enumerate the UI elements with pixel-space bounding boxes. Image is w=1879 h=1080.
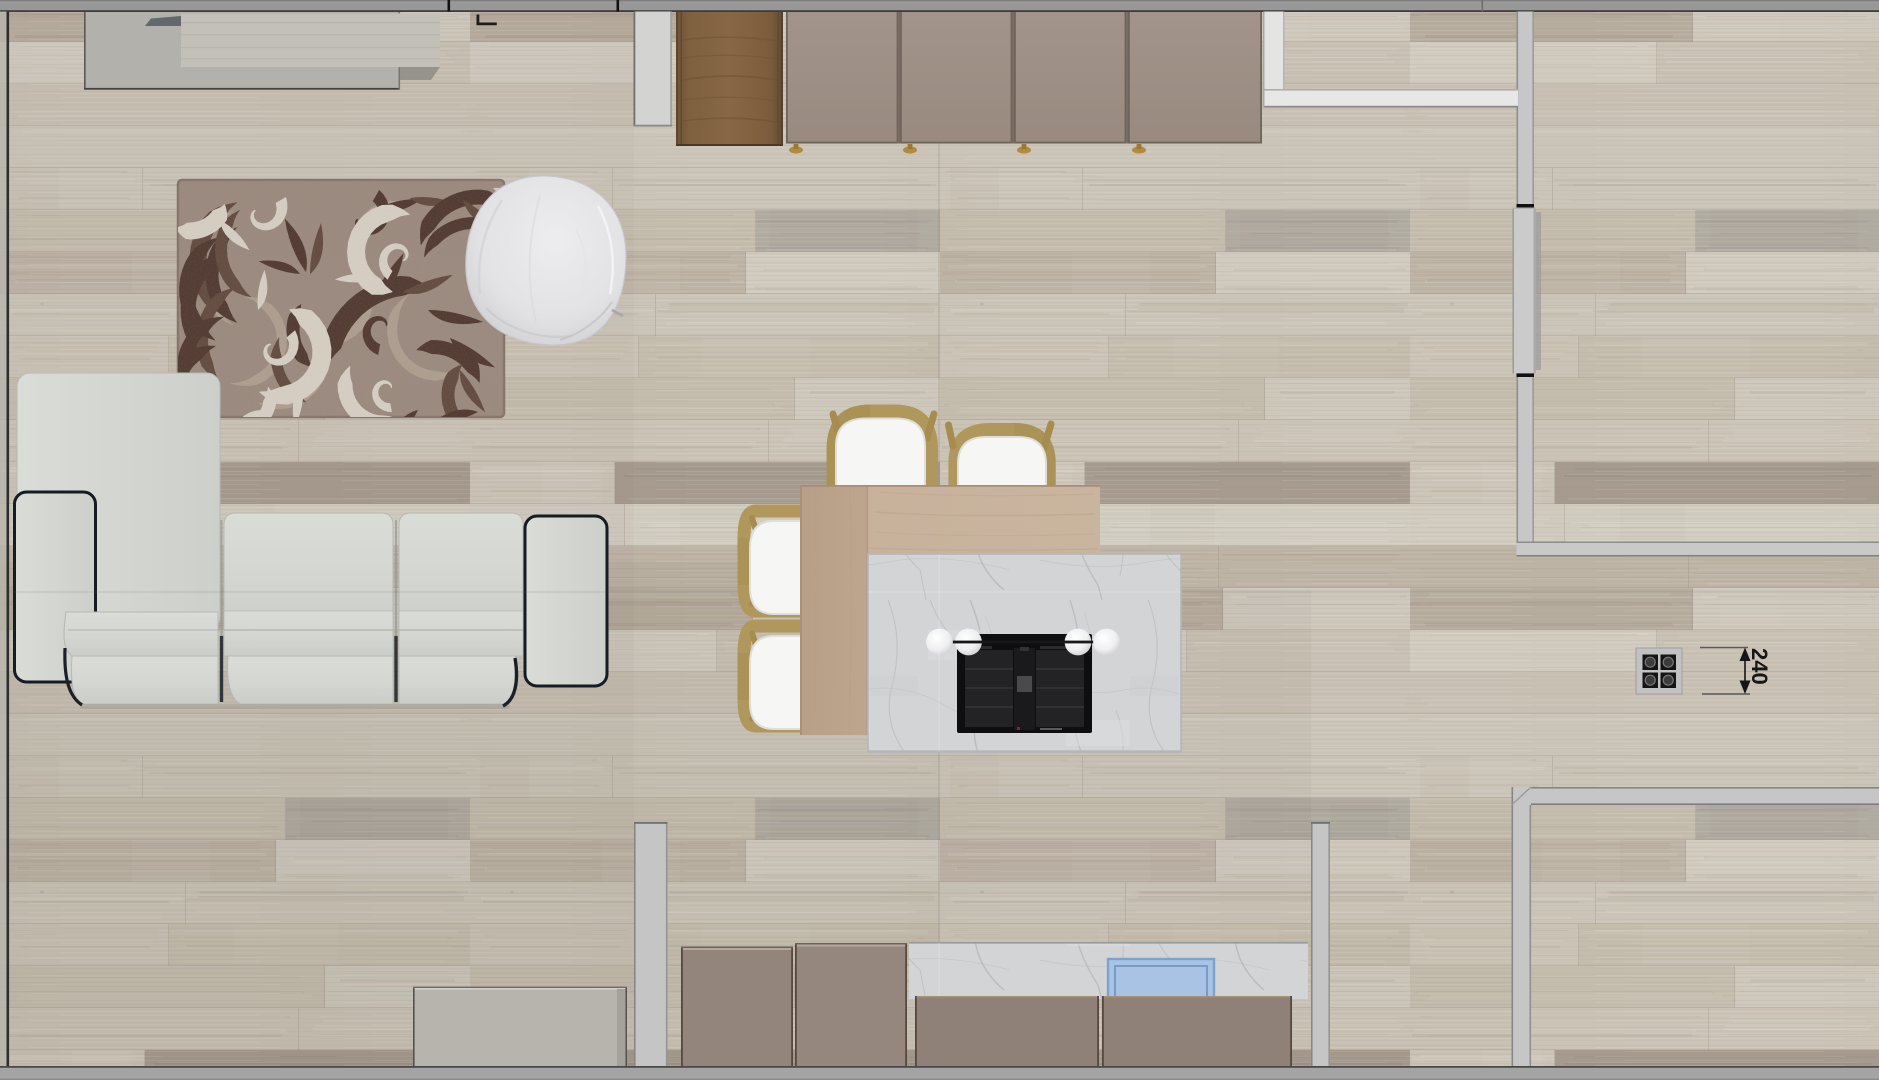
svg-text:240: 240 [1747, 648, 1772, 685]
